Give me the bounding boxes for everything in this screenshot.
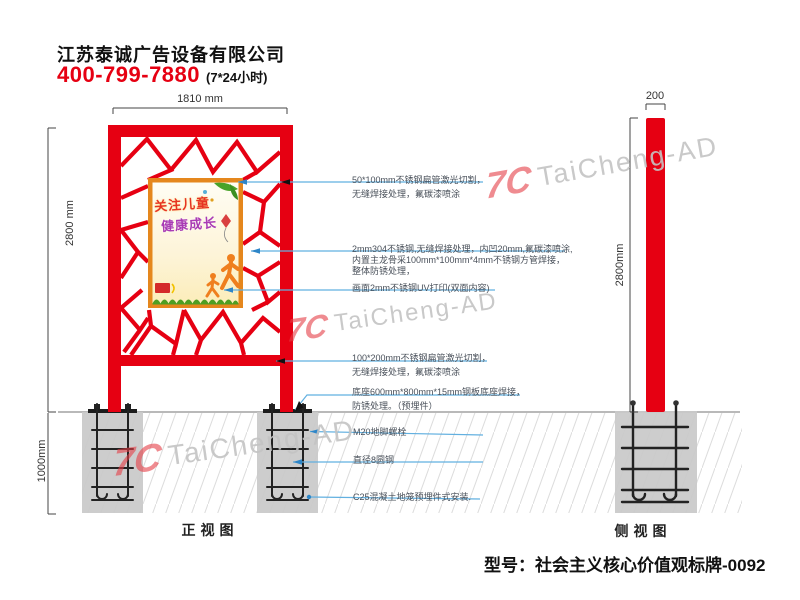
annotation-base-plate: 底座600mm*800mm*15mm钢板底座焊接， <box>352 385 525 398</box>
side-view-label: 侧视图 <box>598 521 688 541</box>
phone-row: 400-799-7880(7*24小时) <box>57 62 267 88</box>
annotation-flat-tube-top: 50*100mm不锈钢扁管激光切割， <box>352 173 486 186</box>
annotation-flat-tube-top: 无缝焊接处理，氟碳漆喷涂 <box>352 187 460 200</box>
phone-number: 400-799-7880 <box>57 62 200 87</box>
drawing-canvas <box>0 0 800 600</box>
poster-title-line2: 健康成长 <box>160 212 217 235</box>
dim-front-height: 2800 mm <box>64 183 76 263</box>
front-foundation-left <box>82 404 143 513</box>
annotation-flat-tube-bottom: 100*200mm不锈钢扁管激光切割， <box>352 351 491 364</box>
poster-logo-box <box>155 283 170 293</box>
dim-foundation-depth: 1000mm <box>36 431 48 491</box>
annotation-uv-print: 画面2mm不锈钢UV打印(双面内容) <box>352 281 490 294</box>
dim-front-width: 1810 mm <box>160 93 240 105</box>
technical-drawing-page: 江苏泰诚广告设备有限公司 400-799-7880(7*24小时) 7C Tai… <box>0 0 800 600</box>
poster-title-line1: 关注儿童 <box>153 192 210 215</box>
dim-side-width: 200 <box>635 90 675 102</box>
annotation-anchor-bolt: M20地脚螺栓 <box>353 425 407 438</box>
side-foundation <box>615 400 697 513</box>
service-hours: (7*24小时) <box>206 70 267 85</box>
annotation-flat-tube-bottom: 无缝焊接处理，氟碳漆喷涂 <box>352 365 460 378</box>
annotation-base-plate: 防锈处理。（预埋件） <box>352 399 438 412</box>
dim-side-height: 2800mm <box>614 233 626 297</box>
annotation-concrete-cage: C25混凝土地笼预埋件式安装. <box>353 490 471 503</box>
annotation-round-steel: 直径8圆钢 <box>353 453 394 466</box>
side-pole <box>646 118 665 412</box>
front-view-label: 正视图 <box>165 520 255 540</box>
model-number: 型号：社会主义核心价值观标牌-0092 <box>484 551 765 576</box>
annotation-cabinet-body: 整体防锈处理， <box>352 264 415 277</box>
